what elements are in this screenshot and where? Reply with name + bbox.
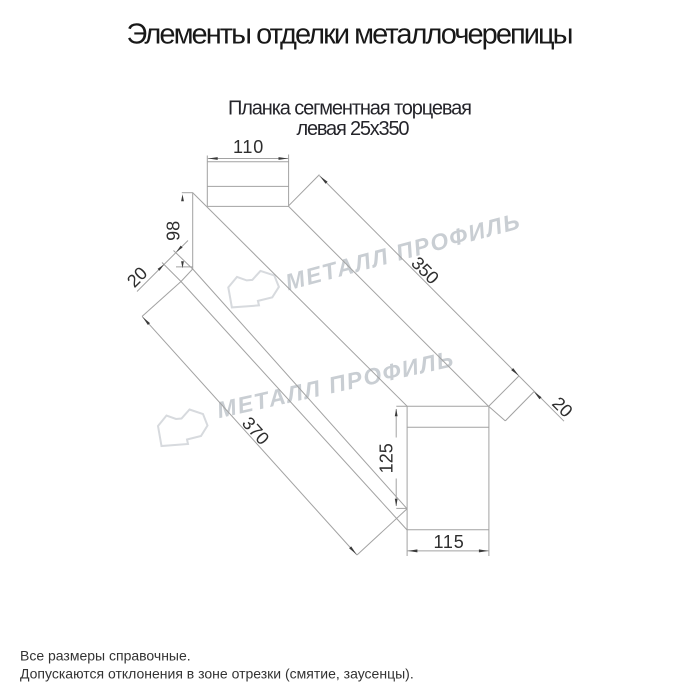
svg-text:115: 115	[433, 532, 464, 552]
svg-text:Элементы отделки металлочерепи: Элементы отделки металлочерепицы	[127, 19, 574, 51]
svg-text:Допускаются отклонения в зоне: Допускаются отклонения в зоне отрезки (с…	[20, 666, 414, 682]
svg-text:98: 98	[164, 221, 184, 241]
svg-text:125: 125	[377, 443, 397, 473]
svg-text:левая 25х350: левая 25х350	[297, 118, 410, 140]
svg-text:110: 110	[233, 137, 264, 157]
svg-text:Все размеры справочные.: Все размеры справочные.	[20, 648, 191, 664]
svg-text:Планка сегментная торцевая: Планка сегментная торцевая	[228, 98, 472, 120]
